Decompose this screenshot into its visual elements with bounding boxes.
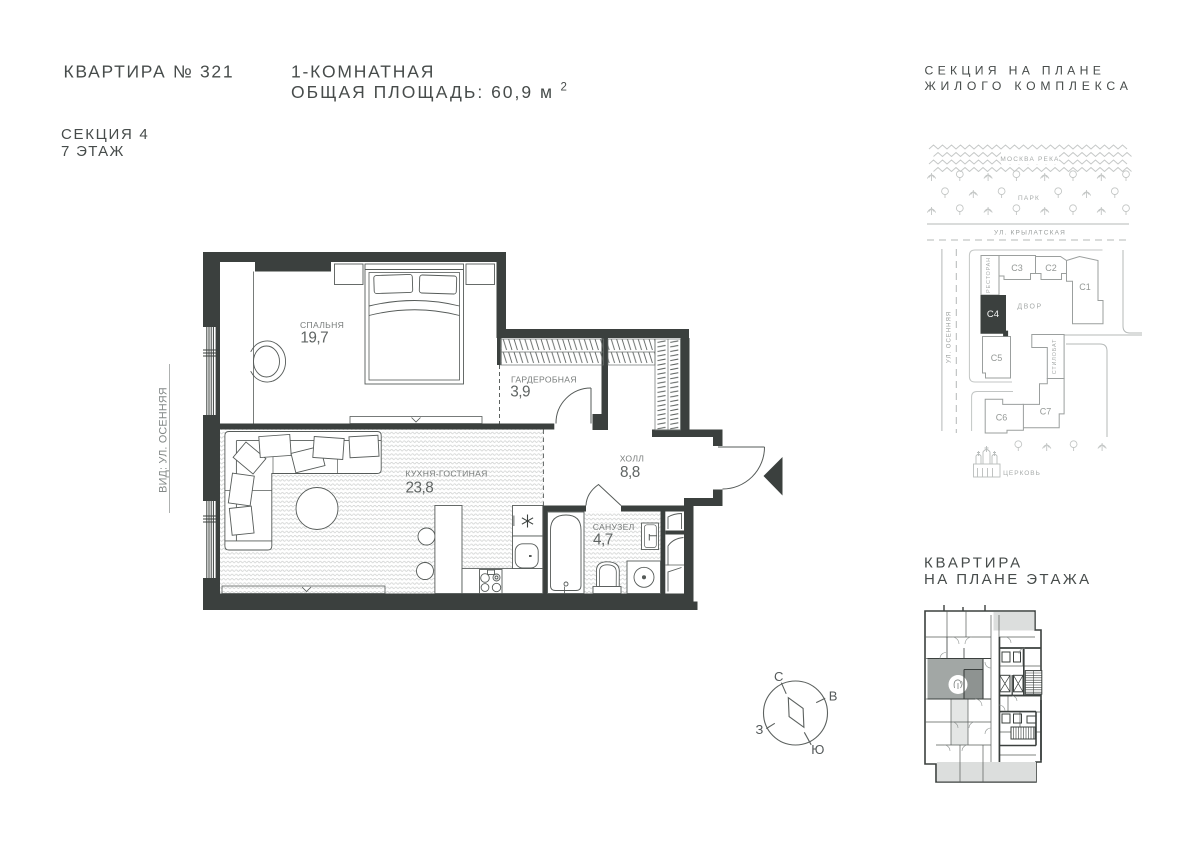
svg-text:СПАЛЬНЯ: СПАЛЬНЯ (300, 320, 344, 330)
svg-text:РЕСТОРАН: РЕСТОРАН (986, 257, 992, 293)
svg-text:ЖИЛОГО КОМПЛЕКСА: ЖИЛОГО КОМПЛЕКСА (925, 79, 1133, 93)
svg-text:С3: С3 (1011, 263, 1023, 273)
svg-text:Ю: Ю (811, 742, 824, 757)
svg-text:19,7: 19,7 (300, 330, 328, 347)
svg-text:С5: С5 (991, 353, 1003, 363)
svg-text:С2: С2 (1045, 263, 1057, 273)
svg-text:3,9: 3,9 (510, 383, 530, 400)
svg-text:КВАРТИРА № 321: КВАРТИРА № 321 (64, 61, 235, 81)
svg-text:С7: С7 (1040, 407, 1052, 417)
svg-text:НА ПЛАНЕ ЭТАЖА: НА ПЛАНЕ ЭТАЖА (924, 571, 1092, 588)
svg-text:ХОЛЛ: ХОЛЛ (620, 454, 645, 464)
svg-text:23,8: 23,8 (406, 480, 434, 497)
svg-text:З: З (756, 722, 764, 737)
svg-text:УЛ. КРЫЛАТСКАЯ: УЛ. КРЫЛАТСКАЯ (994, 230, 1066, 237)
svg-text:МОСКВА РЕКА: МОСКВА РЕКА (1000, 156, 1059, 163)
svg-text:СЕКЦИЯ НА ПЛАНЕ: СЕКЦИЯ НА ПЛАНЕ (925, 64, 1106, 78)
svg-text:1-КОМНАТНАЯ: 1-КОМНАТНАЯ (291, 61, 435, 81)
svg-text:С6: С6 (996, 413, 1008, 423)
svg-text:ОБЩАЯ ПЛОЩАДЬ: 60,9 м: ОБЩАЯ ПЛОЩАДЬ: 60,9 м (291, 82, 554, 102)
svg-text:С1: С1 (1079, 282, 1091, 292)
svg-text:УЛ. ОСЕННЯЯ: УЛ. ОСЕННЯЯ (947, 311, 953, 363)
svg-text:С4: С4 (987, 309, 999, 320)
svg-text:СЕКЦИЯ 4: СЕКЦИЯ 4 (61, 126, 149, 143)
svg-text:2: 2 (561, 82, 567, 94)
svg-text:ДВОР: ДВОР (1017, 304, 1042, 311)
svg-text:ЦЕРКОВЬ: ЦЕРКОВЬ (1003, 470, 1041, 477)
svg-text:В: В (829, 689, 838, 704)
svg-text:8,8: 8,8 (620, 464, 640, 481)
svg-text:С: С (774, 669, 783, 684)
svg-text:КУХНЯ-ГОСТИНАЯ: КУХНЯ-ГОСТИНАЯ (406, 469, 488, 479)
svg-text:СТИЛОБАТ: СТИЛОБАТ (1052, 339, 1058, 374)
svg-text:4,7: 4,7 (593, 531, 613, 548)
svg-text:КВАРТИРА: КВАРТИРА (924, 554, 1023, 571)
svg-text:7 ЭТАЖ: 7 ЭТАЖ (61, 143, 125, 160)
svg-text:ВИД: УЛ. ОСЕННЯЯ: ВИД: УЛ. ОСЕННЯЯ (157, 387, 169, 493)
svg-text:ПАРК: ПАРК (1018, 195, 1040, 202)
